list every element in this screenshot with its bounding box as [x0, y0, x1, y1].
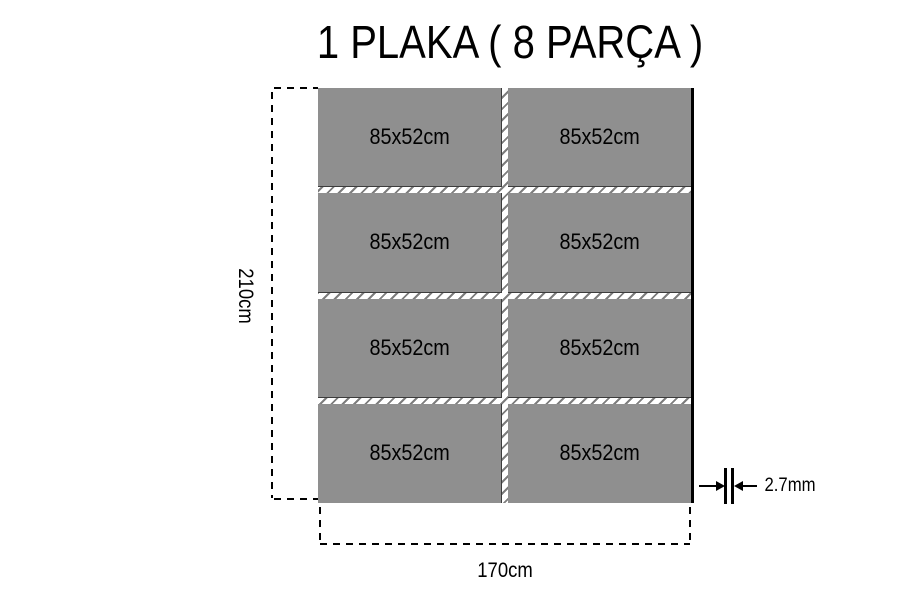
width-dim-right-extension [689, 507, 691, 545]
piece: 85x52cm [318, 88, 502, 187]
piece: 85x52cm [318, 404, 502, 503]
piece-size-label: 85x52cm [559, 229, 639, 255]
piece-size-label: 85x52cm [369, 440, 449, 466]
height-dimension-line [271, 92, 273, 498]
width-dimension-line [320, 543, 690, 545]
plate-grid: 85x52cm 85x52cm 85x52cm 85x52cm 85x52cm … [318, 88, 694, 503]
thickness-bar-outer [724, 468, 727, 504]
page-title-text: 1 PLAKA ( 8 PARÇA ) [317, 15, 703, 69]
thickness-label: 2.7mm [761, 475, 819, 497]
height-dimension-label: 210cm [233, 264, 257, 327]
piece-size-label: 85x52cm [559, 124, 639, 150]
piece: 85x52cm [508, 88, 692, 187]
width-dimension-label: 170cm [473, 559, 536, 583]
piece: 85x52cm [318, 193, 502, 292]
page-title: 1 PLAKA ( 8 PARÇA ) [288, 15, 732, 69]
width-dim-left-extension [319, 507, 321, 545]
piece: 85x52cm [508, 299, 692, 398]
thickness-arrow-left-shaft [742, 485, 757, 487]
piece: 85x52cm [508, 404, 692, 503]
piece: 85x52cm [318, 299, 502, 398]
height-dim-top-extension [274, 87, 318, 89]
piece-size-label: 85x52cm [369, 335, 449, 361]
piece-size-label: 85x52cm [559, 335, 639, 361]
piece-size-label: 85x52cm [369, 124, 449, 150]
piece-size-label: 85x52cm [369, 229, 449, 255]
height-dim-bottom-extension [274, 498, 318, 500]
piece-size-label: 85x52cm [559, 440, 639, 466]
cutting-layout-diagram: 1 PLAKA ( 8 PARÇA ) 85x52cm 85x52cm 85x5… [0, 0, 900, 601]
piece: 85x52cm [508, 193, 692, 292]
